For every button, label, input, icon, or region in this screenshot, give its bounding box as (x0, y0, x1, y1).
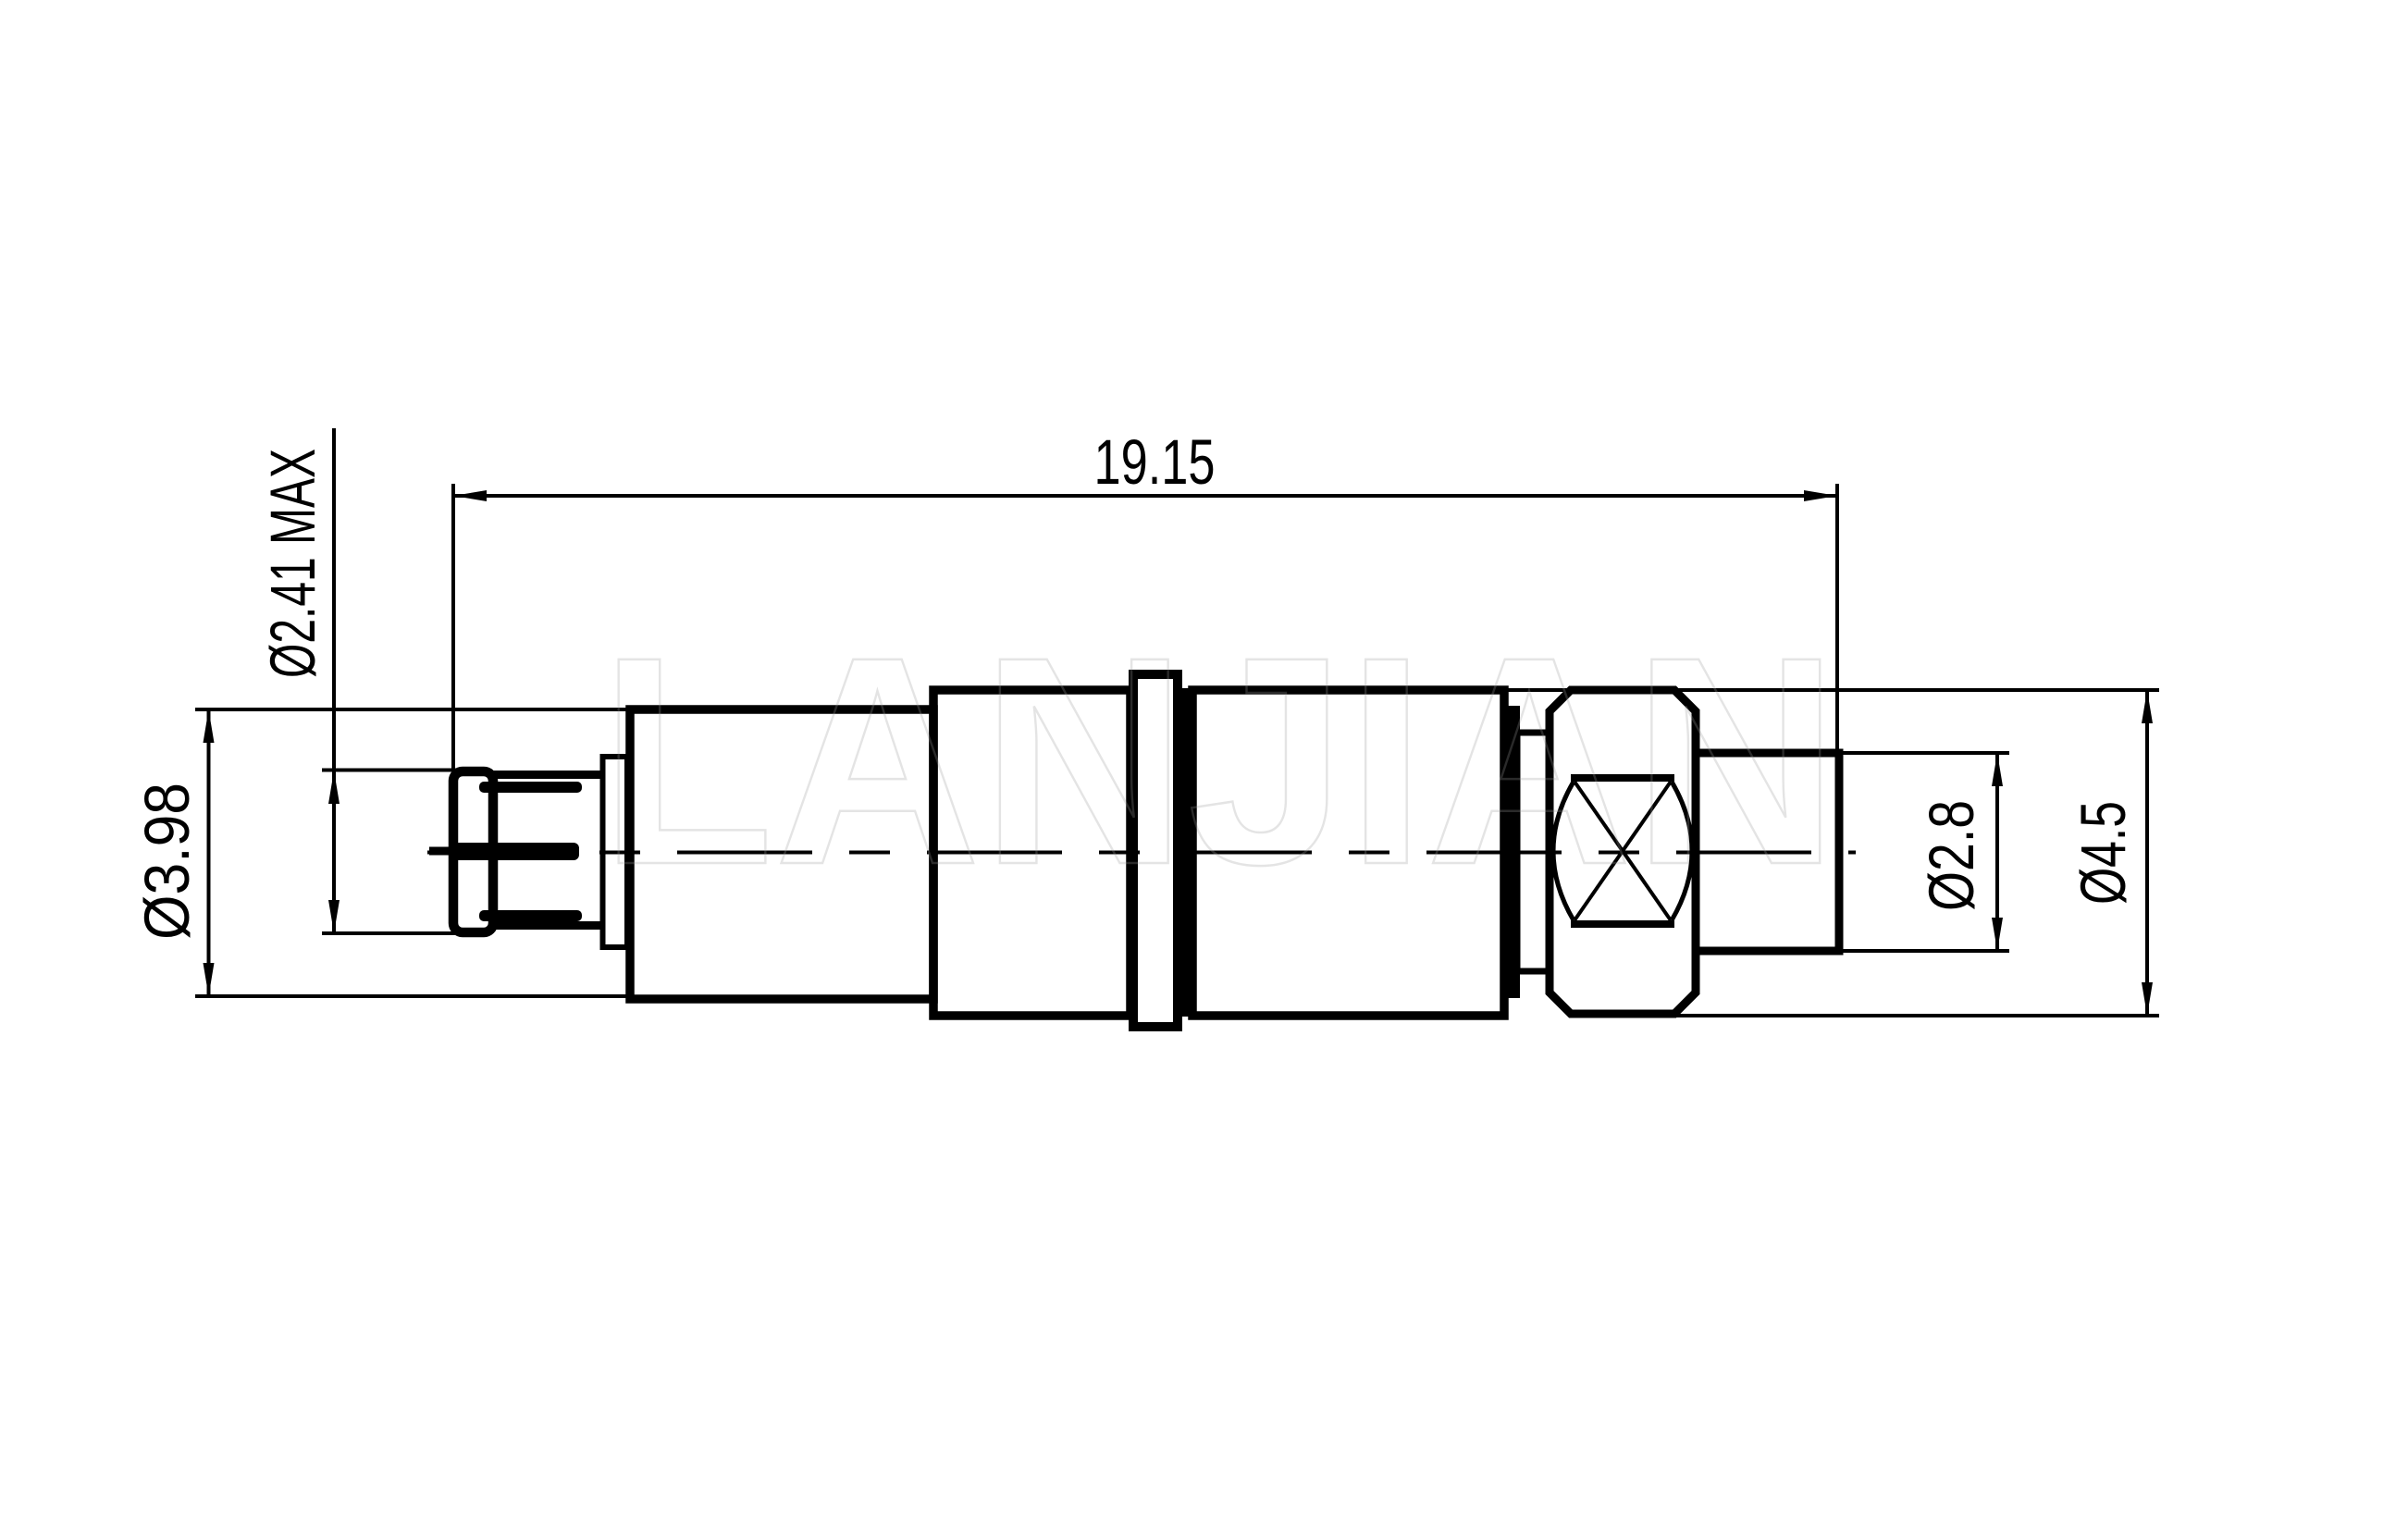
svg-text:LANJIAN: LANJIAN (599, 595, 1839, 926)
svg-text:Ø2.41 MAX: Ø2.41 MAX (257, 449, 328, 678)
svg-text:Ø2.8: Ø2.8 (1916, 800, 1987, 911)
svg-text:Ø3.98: Ø3.98 (131, 783, 203, 940)
svg-text:19.15: 19.15 (1094, 426, 1216, 498)
svg-text:Ø4.5: Ø4.5 (2068, 801, 2139, 905)
